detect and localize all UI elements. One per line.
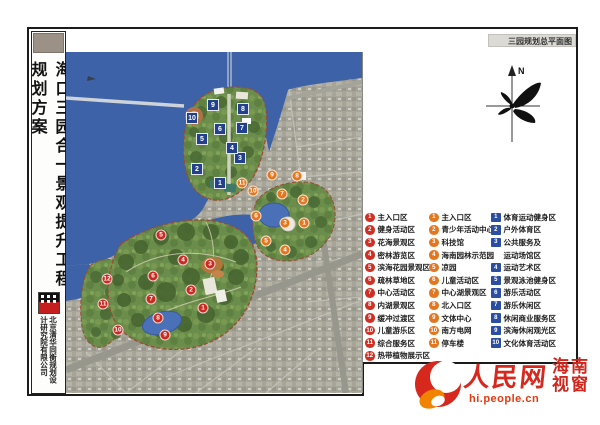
legend-item: 运动场馆区 (491, 249, 577, 262)
legend-badge: 1 (429, 213, 439, 223)
legend-item: 10文化体育活动区 (491, 337, 577, 350)
legend-column-red: 1主入口区2健身活动区3花海景观区4密林游览区5滨海花园景观区6疏林草地区7中心… (365, 211, 427, 362)
map-marker-orange-7: 7 (277, 189, 288, 200)
legend-item: 11综合服务区 (365, 337, 427, 350)
legend-badge: 1 (491, 213, 501, 223)
legend-item: 5凉园 (429, 261, 489, 274)
legend-label: 密林游览区 (378, 250, 416, 261)
top-bar: 三园规划总平面图 (66, 31, 576, 51)
map-marker-orange-9: 9 (267, 170, 278, 181)
marker-layer: 123456789101234567891011123456789101112 (66, 52, 362, 393)
legend-item: 4海南园林示范园 (429, 249, 489, 262)
legend-badge: 4 (429, 250, 439, 260)
brand-name: 人民网 (462, 357, 550, 394)
legend-badge: 3 (491, 238, 501, 248)
legend-label: 文体中心 (442, 313, 472, 324)
map-marker-red-2: 2 (186, 285, 197, 296)
legend-label: 儿童活动区 (442, 275, 480, 286)
legend-badge: 2 (365, 225, 375, 235)
map-marker-blue-2: 2 (191, 163, 203, 175)
legend-label: 游乐活动区 (504, 287, 542, 298)
legend-badge: 2 (491, 225, 501, 235)
legend-badge: 11 (365, 338, 375, 348)
frame-bottom-left (27, 394, 364, 396)
legend-item: 6游乐活动区 (491, 287, 577, 300)
map-marker-red-12: 12 (102, 274, 113, 285)
map-marker-blue-1: 1 (214, 177, 226, 189)
legend-label: 中心湖景观区 (442, 287, 487, 298)
page: 海口三园合一景观提升工程规划方案 北京清华同衡规划设计研究院有限公司 三园规划总… (0, 0, 600, 425)
legend-badge: 10 (491, 338, 501, 348)
legend-badge: 8 (491, 313, 501, 323)
legend-label: 停车楼 (442, 338, 465, 349)
brand-region-line2: 视窗 (552, 376, 590, 394)
map-marker-red-4: 4 (178, 255, 189, 266)
legend-badge: 5 (365, 263, 375, 273)
legend-label: 南方电网 (442, 325, 472, 336)
legend-item: 1体育运动健身区 (491, 211, 577, 224)
map-marker-red-6: 6 (148, 271, 159, 282)
legend-badge: 4 (365, 250, 375, 260)
legend-item: 4运动艺术区 (491, 261, 577, 274)
map-marker-red-5: 5 (156, 230, 167, 241)
map-marker-red-7: 7 (146, 294, 157, 305)
master-plan-map: 123456789101234567891011123456789101112 (66, 52, 363, 393)
legend-badge: 4 (491, 263, 501, 273)
map-marker-red-1: 1 (198, 303, 209, 314)
legend-badge: 5 (429, 263, 439, 273)
legend-label: 户外体育区 (504, 224, 542, 235)
legend-item: 5滨海花园景观区 (365, 261, 427, 274)
legend-label: 中心活动区 (378, 287, 416, 298)
legend-label: 文化体育活动区 (504, 338, 557, 349)
legend-item: 2青少年活动中心 (429, 224, 489, 237)
svg-text:N: N (518, 66, 525, 76)
legend-label: 主入口区 (378, 212, 408, 223)
legend-item: 8内湖景观区 (365, 299, 427, 312)
brand-region-line1: 海南 (552, 358, 590, 376)
legend-badge: 10 (429, 326, 439, 336)
legend-badge: 7 (491, 301, 501, 311)
map-marker-orange-8: 8 (292, 171, 303, 182)
legend-badge: 9 (365, 313, 375, 323)
legend-badge: 6 (491, 288, 501, 298)
legend-item: 6疏林草地区 (365, 274, 427, 287)
map-marker-orange-10: 10 (248, 186, 259, 197)
map-marker-orange-3: 3 (280, 218, 291, 229)
legend-label: 北入口区 (442, 300, 472, 311)
map-marker-red-9: 9 (160, 330, 171, 341)
map-marker-orange-5: 5 (261, 236, 272, 247)
map-marker-orange-4: 4 (280, 245, 291, 256)
map-marker-red-10: 10 (113, 325, 124, 336)
legend-label: 疏林草地区 (378, 275, 416, 286)
legend-item: 3科技馆 (429, 236, 489, 249)
legend-item: 7中心湖景观区 (429, 287, 489, 300)
legend-label: 缓冲过渡区 (378, 313, 416, 324)
legend-item: 1主入口区 (429, 211, 489, 224)
legend-label: 花海景观区 (378, 237, 416, 248)
map-marker-orange-6: 6 (251, 211, 262, 222)
legend-column-orange: 1主入口区2青少年活动中心3科技馆4海南园林示范园5凉园6儿童活动区7中心湖景观… (429, 211, 489, 350)
legend-badge: 1 (365, 213, 375, 223)
legend-label: 内湖景观区 (378, 300, 416, 311)
legend-label: 运动场馆区 (504, 250, 542, 261)
legend-item: 9滨海休闲观光区 (491, 324, 577, 337)
legend-item: 2户外体育区 (491, 224, 577, 237)
design-institute-logo (38, 292, 60, 314)
legend-badge: 3 (365, 238, 375, 248)
legend-badge: 7 (365, 288, 375, 298)
map-marker-blue-4: 4 (226, 142, 238, 154)
legend-item: 9文体中心 (429, 312, 489, 325)
map-marker-red-8: 8 (153, 313, 164, 324)
map-marker-orange-1: 1 (299, 218, 310, 229)
map-marker-blue-6: 6 (214, 123, 226, 135)
legend-item: 10南方电网 (429, 324, 489, 337)
legend-badge: 6 (365, 276, 375, 286)
legend-label: 运动艺术区 (504, 262, 542, 273)
map-marker-blue-10: 10 (186, 112, 198, 124)
legend-label: 海南园林示范园 (442, 250, 495, 261)
frame-top (27, 27, 578, 29)
legend-label: 滨海休闲观光区 (504, 325, 557, 336)
legend-item: 2健身活动区 (365, 224, 427, 237)
legend-badge: 6 (429, 276, 439, 286)
legend-badge: 12 (365, 351, 375, 361)
legend-item: 10儿童游乐区 (365, 324, 427, 337)
legend-label: 体育运动健身区 (504, 212, 557, 223)
peoples-daily-logo: 人民网 hi.people.cn 海南 视窗 (410, 355, 600, 423)
drawing-title: 三园规划总平面图 (488, 34, 576, 47)
legend-item: 7游乐休闲区 (491, 299, 577, 312)
map-marker-red-11: 11 (98, 299, 109, 310)
map-marker-blue-5: 5 (196, 133, 208, 145)
legend-label: 科技馆 (442, 237, 465, 248)
legend-badge: 10 (365, 326, 375, 336)
legend-label: 健身活动区 (378, 224, 416, 235)
legend-item: 3公共服务及 (491, 236, 577, 249)
legend-badge: 8 (365, 301, 375, 311)
legend-badge: 2 (429, 225, 439, 235)
legend-label: 主入口区 (442, 212, 472, 223)
legend-item: 4密林游览区 (365, 249, 427, 262)
map-marker-red-3: 3 (205, 259, 216, 270)
legend-item: 3花海景观区 (365, 236, 427, 249)
legend-badge: 9 (491, 326, 501, 336)
legend-badge: 5 (491, 276, 501, 286)
legend-item: 1主入口区 (365, 211, 427, 224)
sidebar-gray-box (33, 33, 64, 53)
legend-label: 休闲商业服务区 (504, 313, 557, 324)
legend-column-blue: 1体育运动健身区2户外体育区3公共服务及运动场馆区4运动艺术区5景观泳池健身区6… (491, 211, 577, 350)
brand-region: 海南 视窗 (552, 358, 590, 394)
legend-label: 游乐休闲区 (504, 300, 542, 311)
map-marker-orange-2: 2 (298, 195, 309, 206)
legend-item: 7中心活动区 (365, 287, 427, 300)
design-institute-name: 北京清华同衡规划设计研究院有限公司 (40, 316, 58, 390)
map-marker-blue-7: 7 (236, 122, 248, 134)
legend-label: 滨海花园景观区 (378, 262, 431, 273)
legend-label: 公共服务及 (504, 237, 542, 248)
north-arrow-icon: N (480, 60, 550, 152)
legend-badge: 9 (429, 313, 439, 323)
legend-item: 6儿童活动区 (429, 274, 489, 287)
legend-label: 景观泳池健身区 (504, 275, 557, 286)
legend-item: 11停车楼 (429, 337, 489, 350)
legend-badge: 8 (429, 301, 439, 311)
legend-label: 综合服务区 (378, 338, 416, 349)
legend-badge: 7 (429, 288, 439, 298)
legend-item: 9缓冲过渡区 (365, 312, 427, 325)
legend-item: 5景观泳池健身区 (491, 274, 577, 287)
title-block-sidebar: 海口三园合一景观提升工程规划方案 北京清华同衡规划设计研究院有限公司 (31, 31, 66, 394)
brand-url: hi.people.cn (469, 393, 539, 405)
legend-label: 儿童游乐区 (378, 325, 416, 336)
map-marker-blue-8: 8 (237, 103, 249, 115)
map-marker-orange-11: 11 (237, 178, 248, 189)
legend-label: 青少年活动中心 (442, 224, 495, 235)
brand-swirl-icon (412, 357, 466, 415)
legend-item: 8北入口区 (429, 299, 489, 312)
legend-badge: 3 (429, 238, 439, 248)
legend-badge: 11 (429, 338, 439, 348)
legend-item: 8休闲商业服务区 (491, 312, 577, 325)
legend-label: 凉园 (442, 262, 457, 273)
map-marker-blue-9: 9 (207, 99, 219, 111)
